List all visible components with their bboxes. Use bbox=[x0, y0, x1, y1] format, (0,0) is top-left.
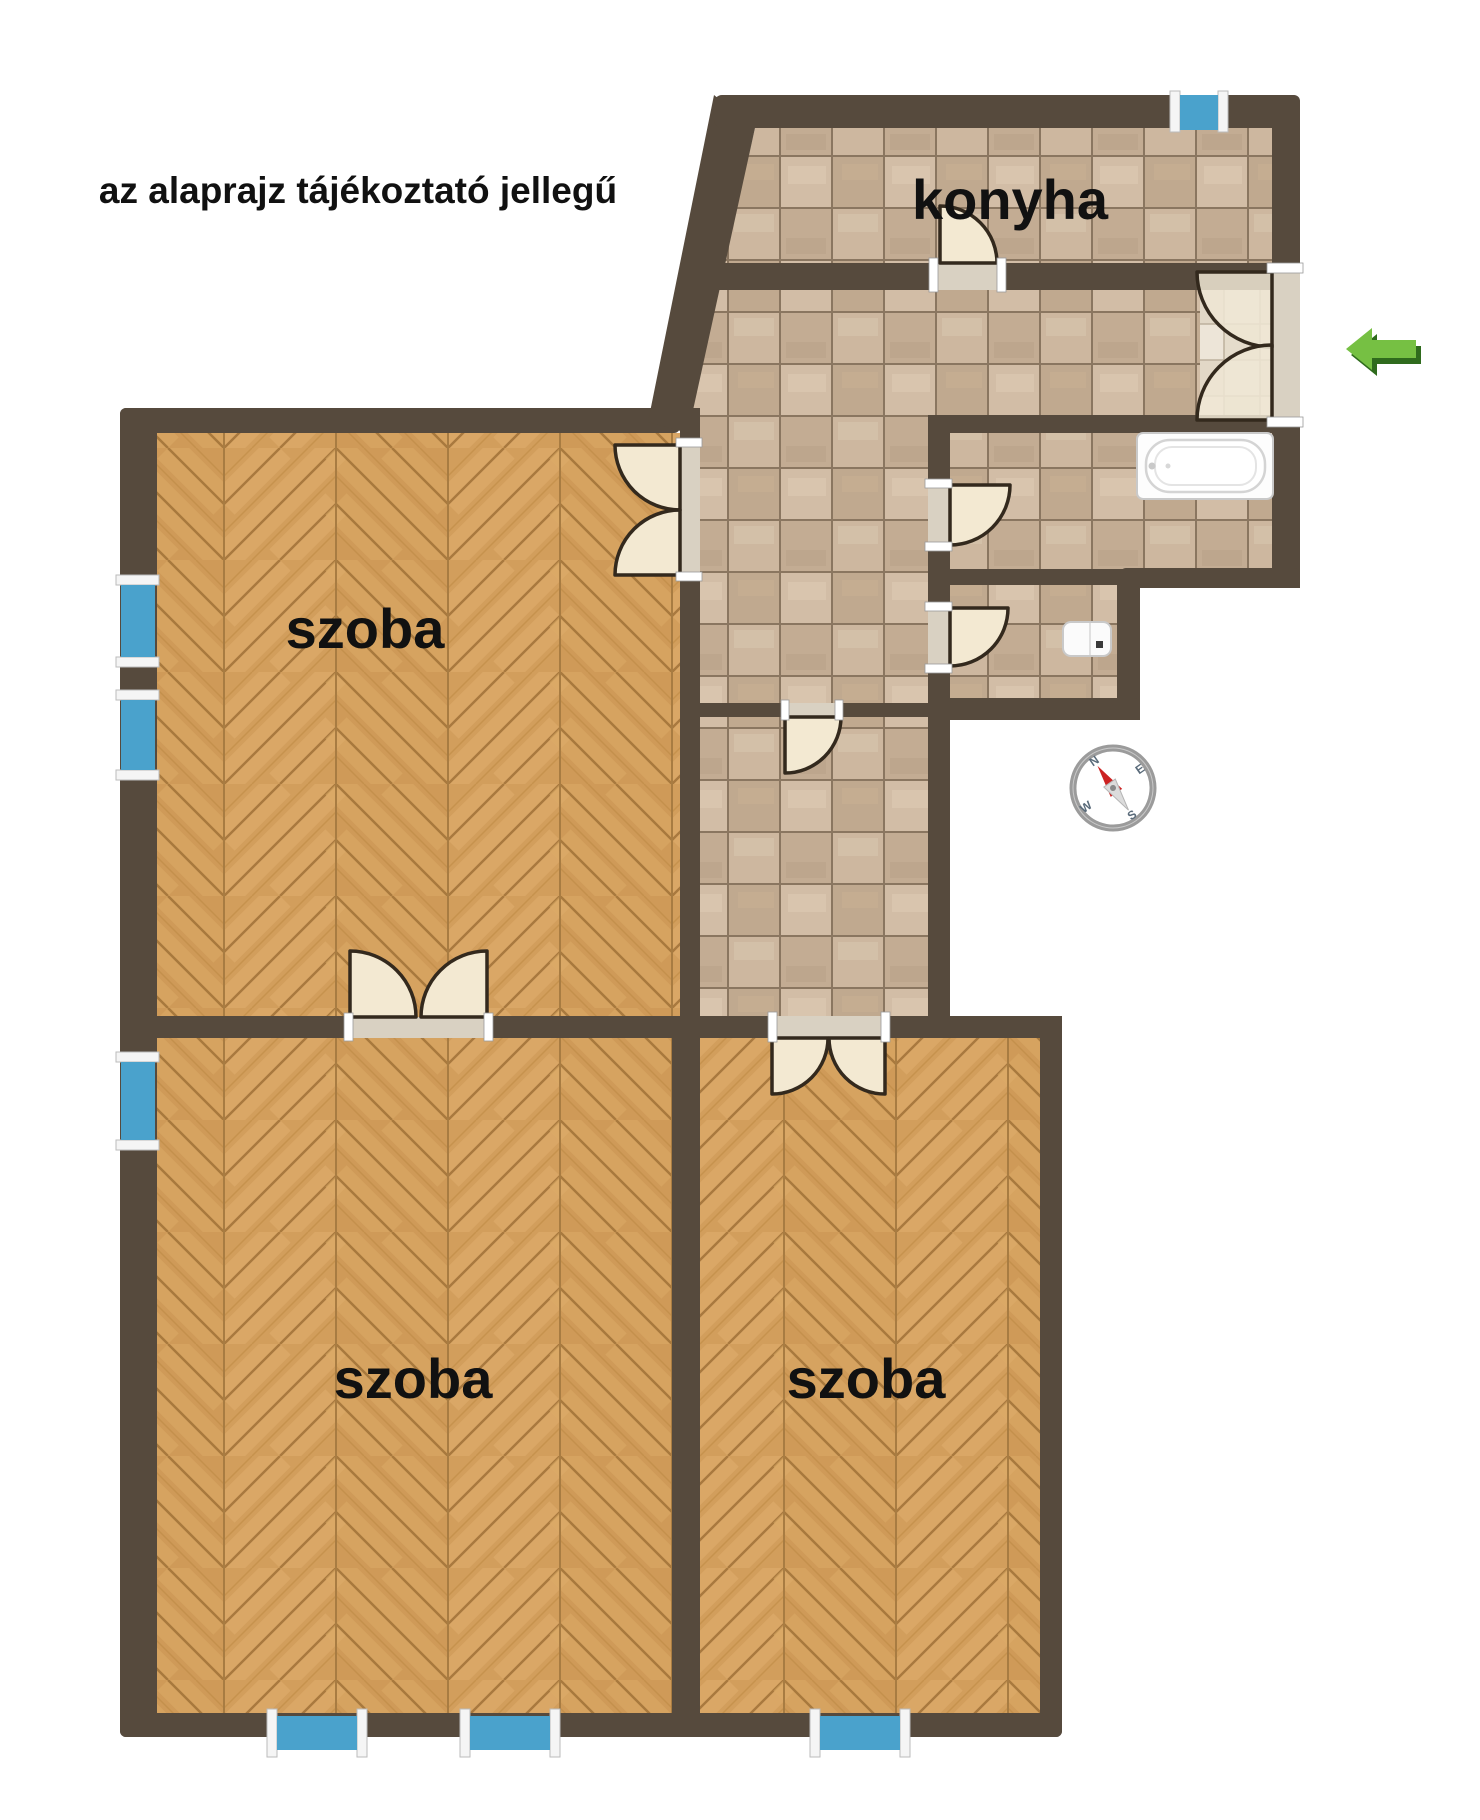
wall-segment bbox=[487, 1016, 772, 1038]
wall-segment bbox=[1272, 420, 1300, 588]
disclaimer-note: az alaprajz tájékoztató jellegű bbox=[99, 170, 617, 211]
window-left-3 bbox=[116, 1052, 159, 1150]
toilet bbox=[1063, 622, 1111, 656]
wall-segment bbox=[928, 415, 950, 485]
compass-icon: N E S W bbox=[1057, 732, 1168, 843]
window-bottom-3 bbox=[810, 1709, 910, 1757]
wall-segment bbox=[1040, 1016, 1062, 1737]
wall-segment bbox=[947, 569, 1120, 585]
wall-segment bbox=[680, 575, 700, 1016]
wall-segment bbox=[1120, 568, 1300, 588]
wall-segment bbox=[708, 263, 933, 290]
window-bottom-1 bbox=[267, 1709, 367, 1757]
wall-segment bbox=[120, 408, 680, 433]
bathtub bbox=[1137, 433, 1273, 499]
room-label-bottom-right: szoba bbox=[787, 1347, 947, 1410]
entrance-arrow-icon bbox=[1346, 328, 1421, 376]
wall-segment bbox=[928, 545, 950, 608]
room-label-bottom-left: szoba bbox=[334, 1347, 494, 1410]
wall-segment bbox=[120, 1713, 1062, 1737]
floor-plan: N E S W az alaprajz tájékoztató jellegű … bbox=[0, 0, 1480, 1820]
wall-segment bbox=[1117, 569, 1140, 720]
wall-segment bbox=[838, 703, 935, 717]
room-label-top-left: szoba bbox=[286, 597, 446, 660]
wall-segment bbox=[885, 1016, 1062, 1038]
room-label-kitchen: konyha bbox=[912, 168, 1109, 231]
room-top-left-floor bbox=[157, 433, 680, 1017]
wall-segment bbox=[928, 668, 950, 1016]
window-bottom-2 bbox=[460, 1709, 560, 1757]
wall-segment bbox=[1272, 95, 1300, 272]
window-left-1 bbox=[116, 575, 159, 667]
floor-plan-drawing: N E S W az alaprajz tájékoztató jellegű … bbox=[0, 0, 1480, 1820]
wall-segment bbox=[672, 1038, 700, 1713]
window-kitchen-top bbox=[1170, 91, 1228, 132]
wall-segment bbox=[928, 698, 1140, 720]
window-left-2 bbox=[116, 690, 159, 780]
wall-segment bbox=[120, 1016, 350, 1038]
wall-segment bbox=[700, 703, 785, 717]
